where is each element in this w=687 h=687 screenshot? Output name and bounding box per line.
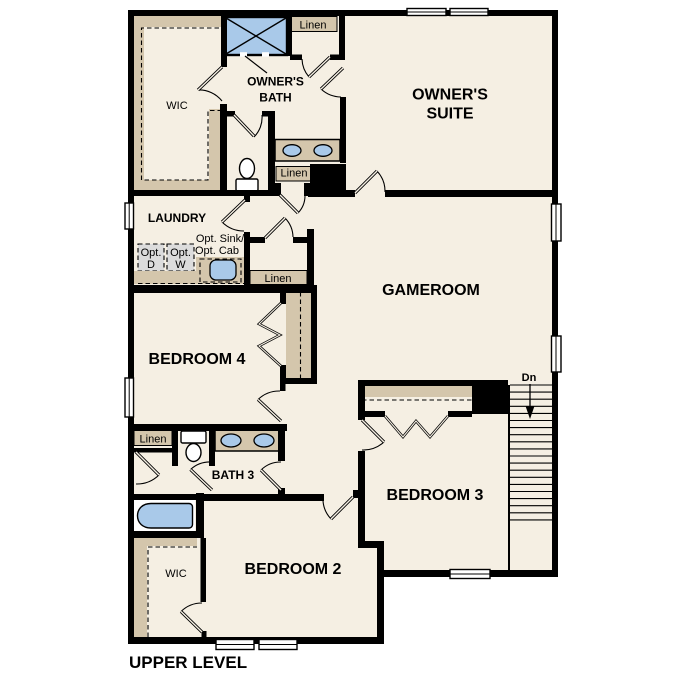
svg-text:GAMEROOM: GAMEROOM [382,282,480,299]
svg-text:Linen: Linen [265,273,292,285]
svg-text:Linen: Linen [281,168,308,180]
svg-text:Opt. Cab: Opt. Cab [195,245,239,257]
svg-text:Linen: Linen [140,434,167,446]
svg-text:BEDROOM 2: BEDROOM 2 [245,561,342,578]
svg-text:OWNER'S: OWNER'S [247,75,304,89]
svg-text:BATH: BATH [259,91,291,105]
svg-text:SUITE: SUITE [426,106,473,123]
svg-text:W: W [175,259,186,271]
svg-text:Linen: Linen [300,20,327,32]
svg-text:Opt. Sink/: Opt. Sink/ [196,233,245,245]
svg-text:BEDROOM 4: BEDROOM 4 [149,351,246,368]
svg-text:OWNER'S: OWNER'S [412,87,488,104]
svg-text:UPPER LEVEL: UPPER LEVEL [129,653,247,672]
svg-text:LAUNDRY: LAUNDRY [148,211,206,225]
svg-text:BEDROOM 3: BEDROOM 3 [387,487,484,504]
svg-text:BATH 3: BATH 3 [212,468,255,482]
svg-text:Opt.: Opt. [170,247,191,259]
svg-text:WIC: WIC [166,100,187,112]
svg-text:D: D [147,259,155,271]
svg-text:Opt.: Opt. [141,247,162,259]
svg-text:WIC: WIC [165,568,186,580]
svg-text:Dn: Dn [522,372,537,384]
